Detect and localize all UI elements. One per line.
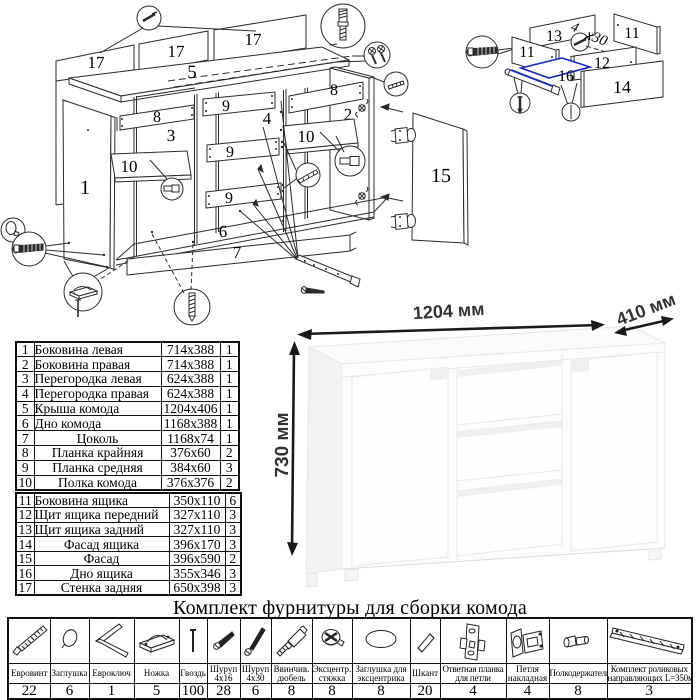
svg-text:10: 10 (121, 157, 138, 176)
svg-text:9: 9 (226, 144, 234, 161)
svg-text:7: 7 (233, 243, 242, 262)
svg-text:13: 13 (546, 28, 562, 45)
svg-text:1204 мм: 1204 мм (412, 299, 485, 323)
svg-text:5: 5 (187, 62, 197, 83)
svg-text:410 мм: 410 мм (613, 289, 678, 330)
svg-text:730 мм: 730 мм (272, 412, 293, 477)
svg-text:11: 11 (519, 44, 534, 61)
svg-text:6: 6 (219, 222, 228, 241)
svg-text:17: 17 (168, 42, 186, 61)
svg-text:3: 3 (167, 126, 176, 145)
svg-text:10: 10 (298, 127, 315, 146)
svg-text:17: 17 (245, 30, 263, 49)
svg-text:15: 15 (431, 165, 451, 187)
svg-text:14: 14 (613, 77, 631, 97)
svg-text:8: 8 (330, 82, 338, 99)
svg-text:16: 16 (558, 68, 574, 85)
svg-text:1: 1 (80, 177, 90, 199)
svg-text:9: 9 (222, 98, 230, 115)
svg-text:9: 9 (225, 190, 233, 207)
svg-text:11: 11 (624, 25, 639, 42)
svg-text:17: 17 (88, 53, 106, 72)
svg-text:8: 8 (153, 109, 161, 126)
svg-text:4: 4 (263, 109, 272, 128)
